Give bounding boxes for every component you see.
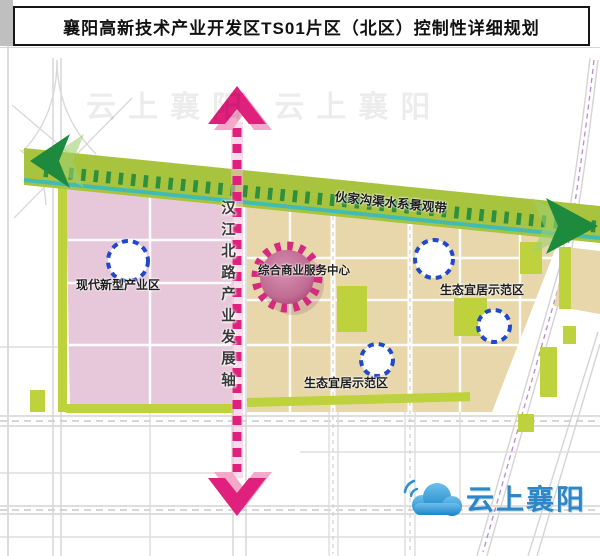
title-divider bbox=[0, 47, 600, 48]
axis-label: 汉江北路产业发展轴 bbox=[217, 200, 238, 394]
page-edge-line bbox=[7, 46, 9, 556]
node-marker bbox=[361, 344, 393, 376]
zone-label-industry: 现代新型产业区 bbox=[76, 276, 160, 293]
site-logo: 云上襄阳 bbox=[400, 476, 586, 520]
title-bar: 襄阳高新技术产业开发区TS01片区（北区）控制性详细规划 bbox=[13, 6, 590, 46]
node-marker bbox=[415, 240, 453, 278]
planning-map-page: 云上襄阳 云上襄阳 bbox=[0, 0, 600, 556]
node-marker bbox=[478, 310, 510, 342]
page-title: 襄阳高新技术产业开发区TS01片区（北区）控制性详细规划 bbox=[63, 14, 540, 39]
zone-label-eco-bottom: 生态宜居示范区 bbox=[304, 374, 388, 391]
commercial-center-label: 综合商业服务中心 bbox=[258, 262, 350, 278]
ghost-watermark-text: 云上襄阳 云上襄阳 bbox=[86, 82, 442, 126]
site-logo-text: 云上襄阳 bbox=[466, 478, 586, 518]
zone-label-eco-right: 生态宜居示范区 bbox=[440, 281, 524, 298]
node-marker bbox=[108, 241, 148, 281]
page-edge-corner bbox=[0, 0, 13, 46]
